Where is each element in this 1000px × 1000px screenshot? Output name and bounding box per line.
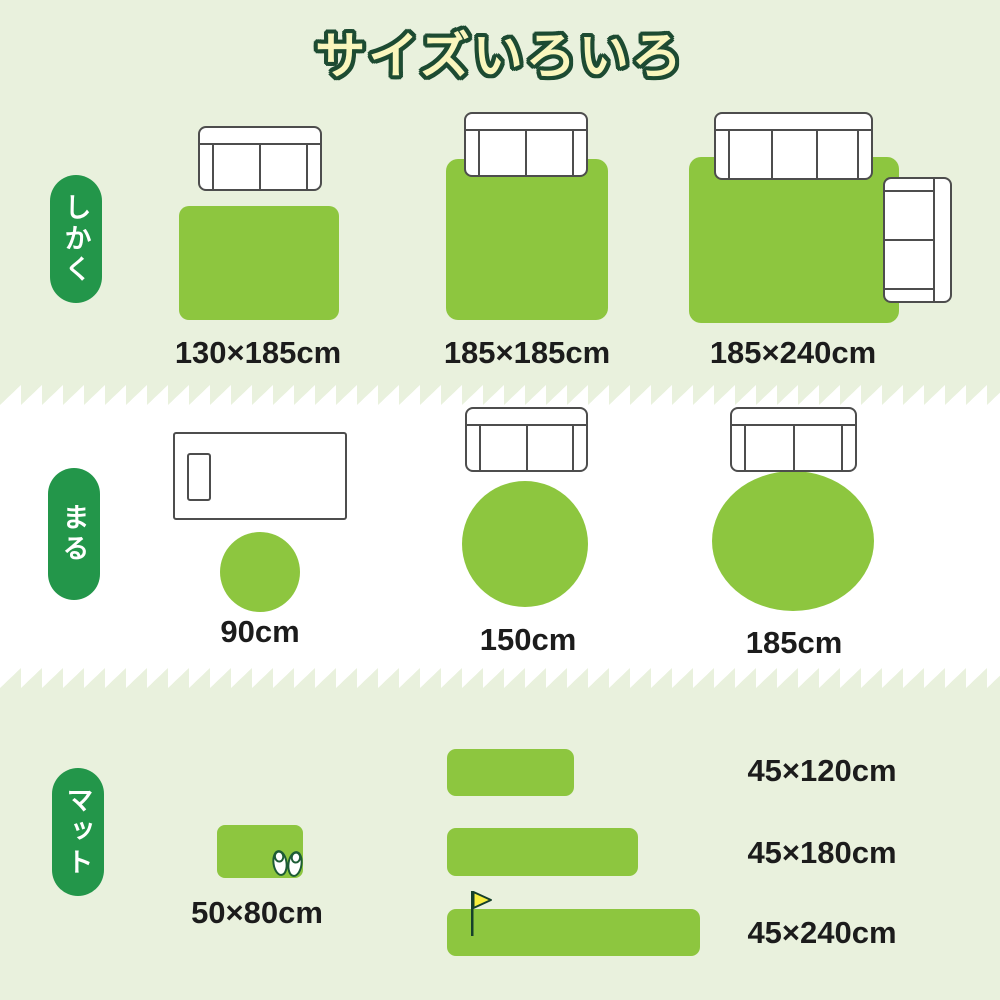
section-pill-mat: マット: [52, 768, 104, 896]
sofa-2seat-icon: [730, 407, 857, 472]
size-label-185x240: 185×240cm: [683, 337, 903, 369]
size-label-45x120: 45×120cm: [712, 755, 932, 787]
pillow-icon: [187, 453, 211, 501]
size-label-45x240: 45×240cm: [712, 917, 932, 949]
rug-185x240: [689, 157, 899, 323]
mat-45x120: [447, 749, 574, 796]
section-label-shikaku: しかく: [57, 193, 96, 286]
section-label-maru: まる: [55, 503, 94, 565]
size-label-90: 90cm: [150, 616, 370, 648]
sofa-2seat-vertical-icon: [883, 177, 952, 303]
rug-130x185: [179, 206, 339, 320]
sofa-3seat-icon: [714, 112, 873, 180]
rug-round-90: [220, 532, 300, 612]
sofa-2seat-icon: [464, 112, 588, 177]
zigzag-divider-top: [0, 385, 1000, 405]
size-label-150: 150cm: [418, 624, 638, 656]
sofa-2seat-icon: [465, 407, 588, 472]
flag-icon: [468, 890, 494, 938]
sofa-2seat-icon: [198, 126, 322, 191]
section-pill-shikaku: しかく: [50, 175, 102, 303]
size-label-45x180: 45×180cm: [712, 837, 932, 869]
mat-45x180: [447, 828, 638, 876]
page-title: サイズいろいろ: [0, 16, 1000, 88]
rug-round-150: [462, 481, 588, 607]
section-label-mat: マット: [59, 786, 98, 879]
size-label-50x80: 50×80cm: [147, 897, 367, 929]
slippers-icon: [270, 847, 306, 879]
size-label-185x185: 185×185cm: [417, 337, 637, 369]
zigzag-divider-bottom: [0, 668, 1000, 688]
size-label-185: 185cm: [684, 627, 904, 659]
rug-185x185: [446, 159, 608, 320]
infographic-canvas: サイズいろいろ しかく 130×185cm 185×185cm 185×240c…: [0, 0, 1000, 1000]
bed-icon: [173, 432, 347, 520]
size-label-130x185: 130×185cm: [148, 337, 368, 369]
rug-round-185: [712, 471, 874, 611]
section-pill-maru: まる: [48, 468, 100, 600]
